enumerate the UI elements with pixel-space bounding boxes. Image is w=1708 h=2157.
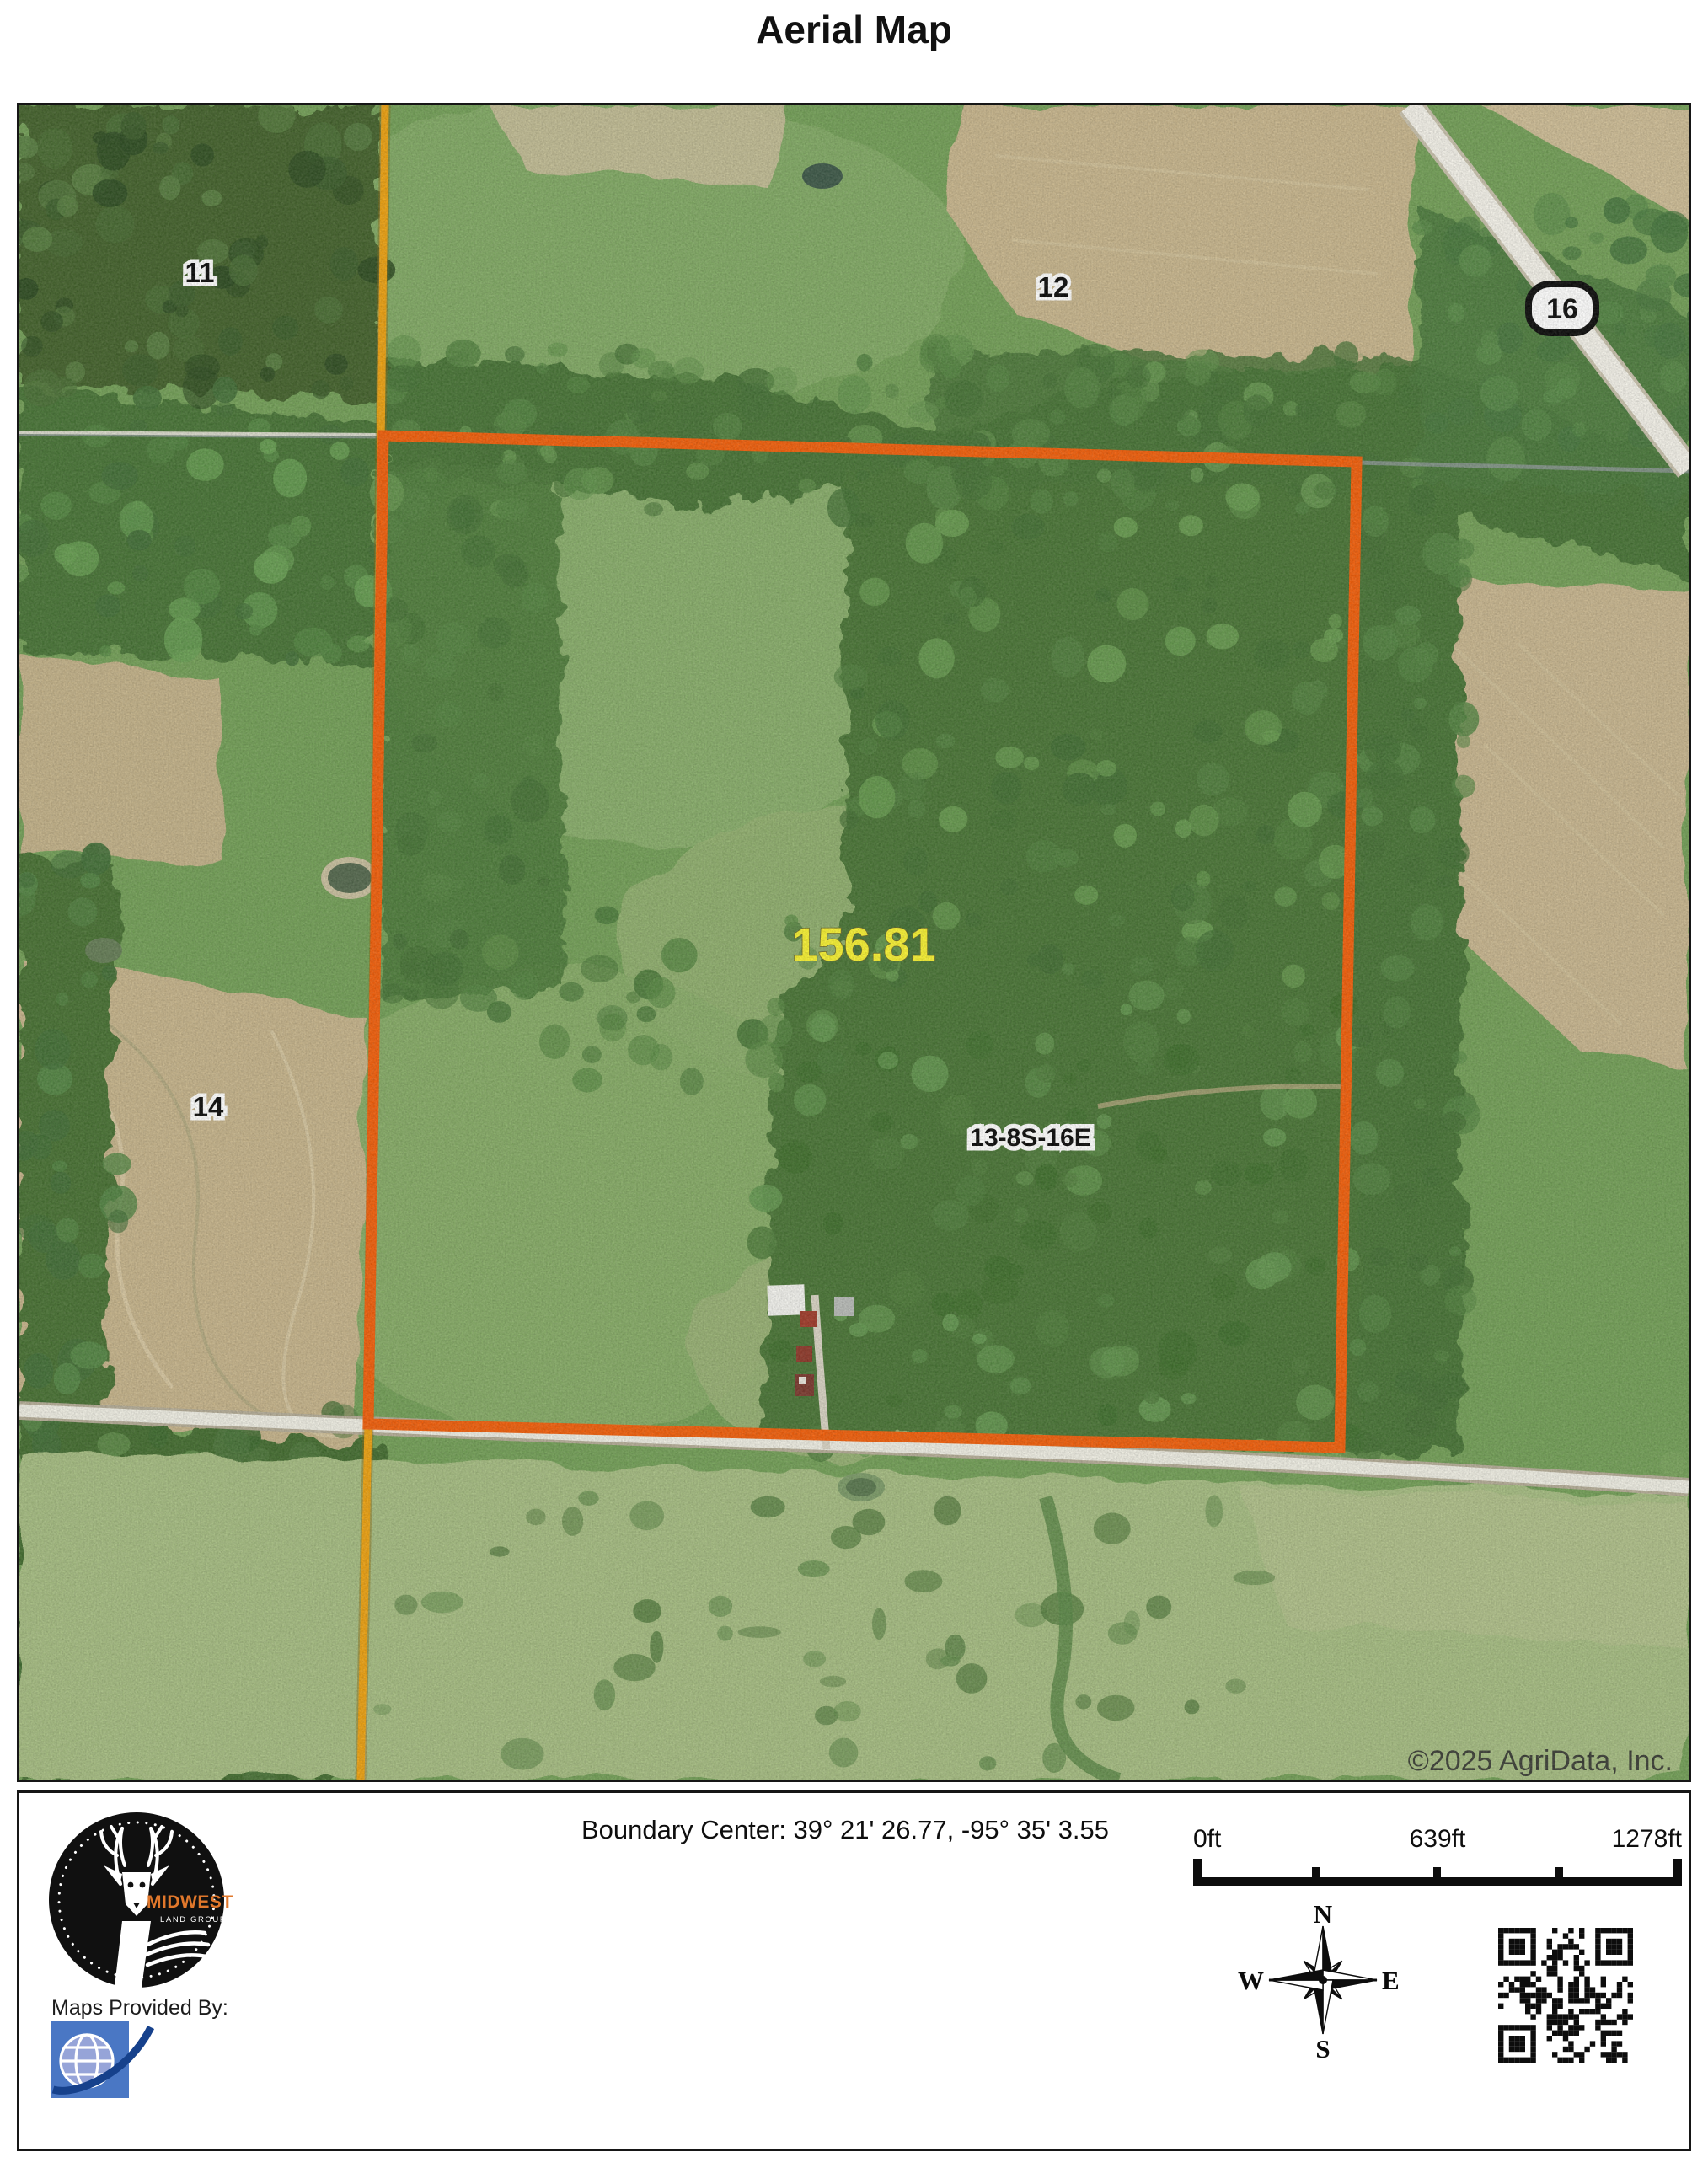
scale-middle-label: 639ft	[1410, 1825, 1466, 1853]
surety-globe-icon	[51, 2019, 178, 2100]
boundary-center-coordinates: Boundary Center: 39° 21' 26.77, -95° 35'…	[424, 1815, 1266, 1845]
aerial-map-page: Aerial Map	[0, 0, 1708, 2157]
compass-star-icon	[1269, 1926, 1377, 2034]
qr-code	[1498, 1928, 1633, 2063]
compass-rose: N S E W	[1222, 1879, 1424, 2081]
midwest-land-group-logo: MIDWEST LAND GROUP	[40, 1803, 233, 1997]
logo-land-group-text: LAND GROUP	[160, 1915, 227, 1924]
map-footer: MIDWEST LAND GROUP Maps Provided By: sur…	[17, 1790, 1691, 2151]
maps-provided-by-label: Maps Provided By:	[51, 1996, 228, 2021]
compass-west-label: W	[1238, 1966, 1264, 1995]
logo-midwest-text: MIDWEST	[147, 1892, 233, 1912]
texture-overlay-light	[19, 105, 1689, 1780]
compass-north-label: N	[1314, 1899, 1332, 1929]
scale-start-label: 0ft	[1193, 1825, 1222, 1853]
page-title: Aerial Map	[0, 7, 1708, 52]
compass-east-label: E	[1382, 1966, 1400, 1995]
scale-end-label: 1278ft	[1612, 1825, 1683, 1853]
compass-south-label: S	[1315, 2034, 1330, 2063]
aerial-map-frame: 11 12 14 13-8S-16E 156.81 16 ©2025 AgriD…	[17, 103, 1691, 1782]
aerial-map-image: 11 12 14 13-8S-16E 156.81 16 ©2025 AgriD…	[19, 105, 1689, 1780]
